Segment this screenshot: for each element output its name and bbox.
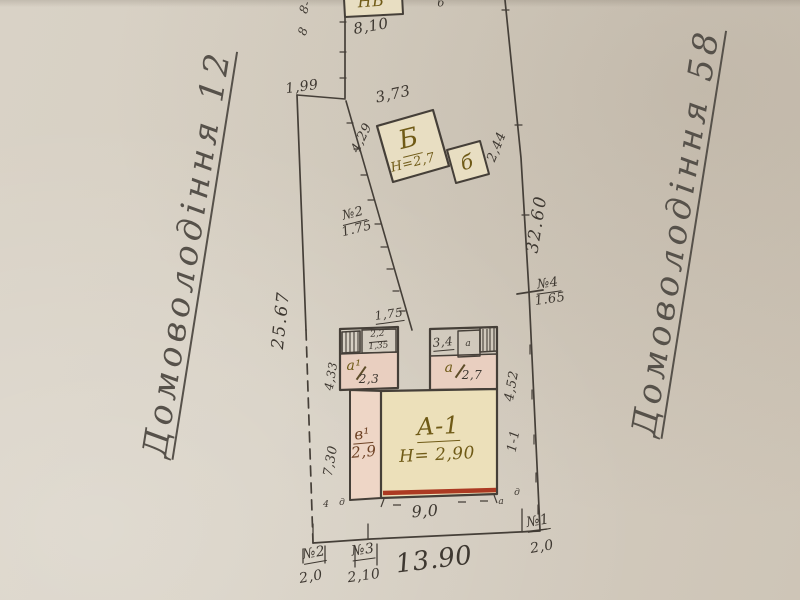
- building-nb-mark: б: [437, 0, 444, 10]
- point-mark: д: [339, 498, 345, 508]
- point-mark: а: [498, 497, 503, 507]
- room-left-area: 2,9: [350, 443, 377, 461]
- house-dim-bottom: 9,0: [411, 501, 439, 522]
- house-main-room: [381, 389, 497, 498]
- house-annex-right-area: 2,7: [462, 368, 483, 382]
- house-porch-right-mark: а: [465, 339, 470, 349]
- boundary-left: [297, 95, 313, 543]
- building-nb-label: НБ: [357, 0, 385, 11]
- gate-no4-label: №4 1.65: [532, 275, 567, 309]
- house-red-wall: [383, 490, 496, 493]
- scanned-plan-page: Домоволодіння 12 Домоволодіння 58 8- 8 1…: [0, 0, 800, 600]
- point-mark: 4: [323, 500, 329, 510]
- gate-no3-id: №3: [350, 540, 375, 561]
- house-annex-left-area: 2,3: [359, 372, 380, 386]
- house-porch-left-label: 2,2 1,35: [367, 329, 389, 352]
- house-height: Н= 2,90: [399, 443, 476, 467]
- house-dim-width: 3,4: [432, 334, 454, 352]
- house-label: А-1: [416, 411, 461, 443]
- house-room-left-label: в¹ 2,9: [349, 425, 377, 461]
- house-porch-hatch-left: [342, 331, 360, 353]
- porch-length: 1,35: [368, 341, 389, 352]
- hatch-lines-right: [483, 328, 494, 351]
- hatch-lines-left: [346, 331, 358, 352]
- point-mark: д: [514, 488, 520, 498]
- house-annex-right-label: а: [445, 360, 454, 376]
